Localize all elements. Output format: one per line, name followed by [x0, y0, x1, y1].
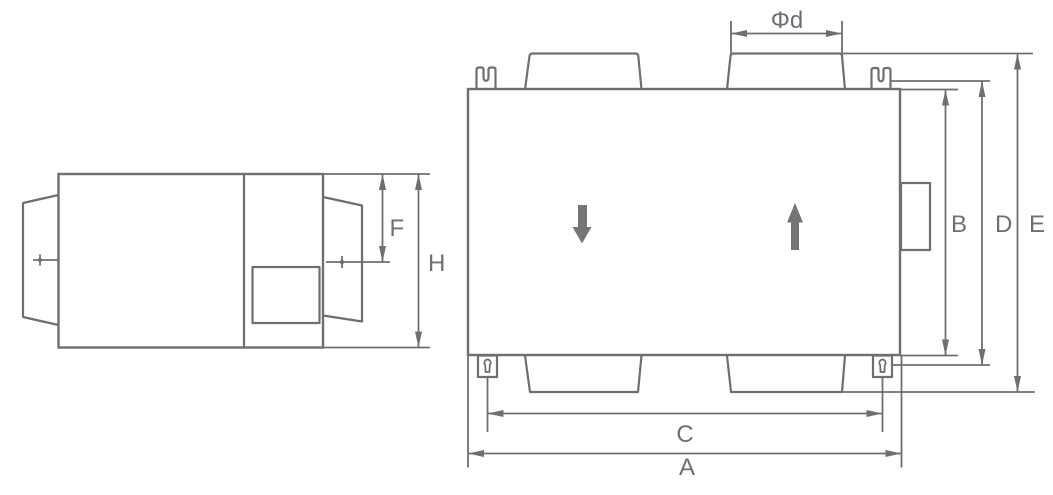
dimension-drawing-page: F H — [0, 0, 1053, 495]
dim-B: B — [900, 90, 967, 356]
arrow-down-icon — [379, 246, 386, 262]
side-view: F H — [23, 174, 445, 348]
arrow-down-icon — [942, 340, 949, 356]
dim-C-label: C — [676, 421, 693, 448]
side-handle-box — [901, 183, 930, 250]
dim-phi-d-label: Φd — [771, 7, 804, 34]
dim-A: A — [468, 356, 902, 482]
side-view-body — [59, 174, 324, 348]
dim-B-label: B — [951, 211, 967, 238]
right-collar-center-marker — [326, 256, 390, 268]
arrow-right-icon — [886, 450, 902, 457]
keyhole-icon — [879, 360, 885, 372]
mounting-bracket-bottom-right — [873, 356, 892, 378]
airflow-down-arrow — [573, 205, 592, 244]
dim-C: C — [488, 377, 883, 448]
top-view-body — [468, 89, 900, 355]
arrow-down-icon — [979, 349, 986, 365]
center-dot-icon — [38, 258, 42, 262]
hanging-bracket-top-left — [477, 68, 496, 89]
arrow-right-icon — [826, 30, 842, 37]
dim-D-label: D — [995, 211, 1012, 238]
arrow-up-icon — [942, 90, 949, 106]
duct-collar-top-right — [727, 54, 845, 90]
airflow-up-arrow — [787, 203, 803, 250]
arrow-left-icon — [731, 30, 747, 37]
dim-F-label: F — [390, 215, 405, 242]
dim-H-label: H — [428, 250, 445, 277]
arrow-left-icon — [468, 450, 484, 457]
left-collar-center-marker — [33, 255, 59, 266]
access-panel — [253, 267, 320, 323]
duct-collar-bottom-right — [727, 356, 845, 393]
arrow-left-icon — [488, 410, 504, 417]
mounting-bracket-bottom-left — [478, 356, 497, 378]
arrow-up-icon — [1014, 54, 1021, 70]
arrow-up-icon — [979, 81, 986, 97]
dim-E-label: E — [1029, 211, 1045, 238]
arrow-down-icon — [1014, 376, 1021, 392]
top-view: Φd B D E — [468, 7, 1045, 481]
arrow-up-icon — [379, 174, 386, 190]
center-dot-icon — [340, 260, 344, 264]
keyhole-icon — [484, 360, 490, 372]
duct-collar-top-left — [525, 54, 642, 90]
dim-phi-d: Φd — [731, 7, 842, 55]
arrow-down-icon — [415, 332, 422, 348]
dim-A-label: A — [679, 454, 695, 481]
dim-F: F — [379, 174, 404, 262]
dim-H: H — [415, 174, 445, 348]
duct-collar-bottom-left — [525, 356, 642, 393]
hanging-bracket-top-right — [872, 68, 891, 89]
dimension-drawing: F H — [0, 0, 1053, 495]
arrow-up-icon — [415, 174, 422, 190]
arrow-right-icon — [867, 410, 883, 417]
